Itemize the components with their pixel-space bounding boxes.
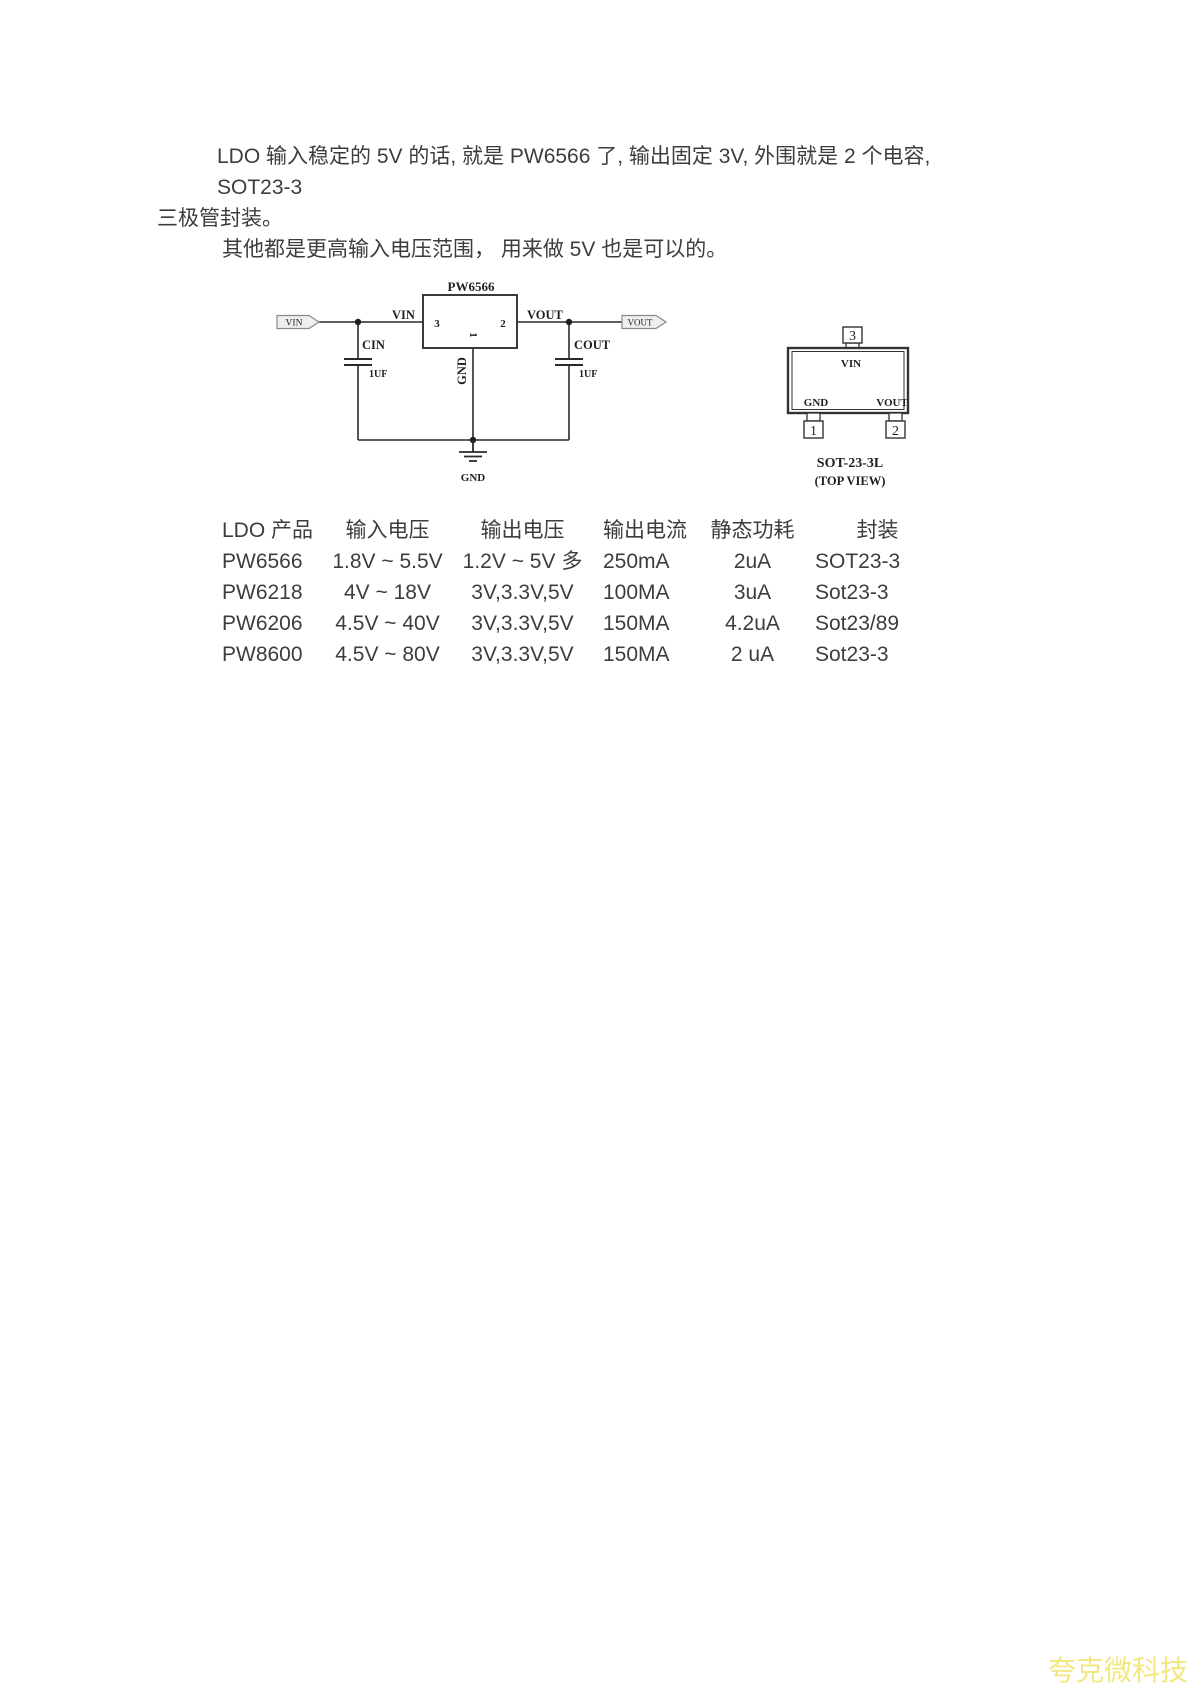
pin2-number: 2 bbox=[892, 424, 899, 439]
vin-flag-label: VIN bbox=[286, 319, 303, 329]
pin2-tab bbox=[889, 413, 902, 421]
ic-pin2-number: 2 bbox=[500, 318, 506, 330]
cell-input-voltage: 4.5V ~ 40V bbox=[320, 608, 455, 639]
pin3-number: 3 bbox=[849, 329, 856, 344]
cout-name: COUT bbox=[574, 338, 611, 352]
table-row: PW6206 4.5V ~ 40V 3V,3.3V,5V 150MA 4.2uA… bbox=[222, 608, 940, 639]
header-input-voltage: 输入电压 bbox=[320, 515, 455, 546]
package-vout-label: VOUT bbox=[876, 397, 908, 409]
intro-line-2: 三极管封装。 bbox=[157, 203, 977, 234]
ldo-product-table: LDO 产品 输入电压 输出电压 输出电流 静态功耗 封装 PW6566 1.8… bbox=[222, 515, 940, 670]
watermark-text: 夸克微科技 bbox=[1048, 1649, 1188, 1683]
package-top-view-diagram: 3 VIN GND VOUT 1 2 SOT-23-3L (TOP VIEW) bbox=[770, 320, 945, 495]
table-row: PW6218 4V ~ 18V 3V,3.3V,5V 100MA 3uA Sot… bbox=[222, 577, 940, 608]
vout-net-label: VOUT bbox=[527, 308, 564, 322]
table-header-row: LDO 产品 输入电压 输出电压 输出电流 静态功耗 封装 bbox=[222, 515, 940, 546]
cin-capacitor-symbol bbox=[344, 359, 372, 365]
vin-net-label: VIN bbox=[392, 308, 415, 322]
header-output-voltage: 输出电压 bbox=[455, 515, 590, 546]
cell-package: Sot23-3 bbox=[815, 577, 940, 608]
cell-output-current: 100MA bbox=[590, 577, 690, 608]
cell-product: PW6566 bbox=[222, 546, 320, 577]
intro-line-3: 其他都是更高输入电压范围， 用来做 5V 也是可以的。 bbox=[157, 234, 977, 265]
cell-product: PW6206 bbox=[222, 608, 320, 639]
cell-package: Sot23-3 bbox=[815, 639, 940, 670]
vin-port-flag: VIN bbox=[277, 316, 319, 329]
cin-value: 1UF bbox=[369, 369, 387, 380]
cell-output-current: 150MA bbox=[590, 639, 690, 670]
cell-package: SOT23-3 bbox=[815, 546, 940, 577]
cell-output-voltage: 3V,3.3V,5V bbox=[455, 608, 590, 639]
ground-symbol bbox=[459, 440, 487, 461]
header-quiescent: 静态功耗 bbox=[690, 515, 815, 546]
cell-output-voltage: 3V,3.3V,5V bbox=[455, 639, 590, 670]
cell-quiescent: 4.2uA bbox=[690, 608, 815, 639]
application-circuit-schematic: VIN VOUT PW6566 3 2 1 VIN VOUT GND CIN 1… bbox=[250, 270, 680, 490]
table-row: PW6566 1.8V ~ 5.5V 1.2V ~ 5V 多 250mA 2uA… bbox=[222, 546, 940, 577]
pin1-number: 1 bbox=[810, 424, 817, 439]
cell-input-voltage: 4V ~ 18V bbox=[320, 577, 455, 608]
ground-label: GND bbox=[461, 472, 486, 484]
cell-quiescent: 3uA bbox=[690, 577, 815, 608]
package-view-note: (TOP VIEW) bbox=[815, 474, 886, 488]
cout-capacitor-symbol bbox=[555, 359, 583, 365]
ic-pin1-number: 1 bbox=[467, 332, 479, 338]
vout-port-flag: VOUT bbox=[622, 316, 666, 329]
document-page: LDO 输入稳定的 5V 的话, 就是 PW6566 了, 输出固定 3V, 外… bbox=[0, 0, 1190, 1683]
table-row: PW8600 4.5V ~ 80V 3V,3.3V,5V 150MA 2 uA … bbox=[222, 639, 940, 670]
cell-product: PW6218 bbox=[222, 577, 320, 608]
cell-output-voltage: 3V,3.3V,5V bbox=[455, 577, 590, 608]
cell-input-voltage: 4.5V ~ 80V bbox=[320, 639, 455, 670]
cell-output-current: 150MA bbox=[590, 608, 690, 639]
ic-title: PW6566 bbox=[448, 279, 495, 294]
header-output-current: 输出电流 bbox=[590, 515, 690, 546]
cin-name: CIN bbox=[362, 338, 385, 352]
cell-package: Sot23/89 bbox=[815, 608, 940, 639]
package-gnd-label: GND bbox=[804, 397, 829, 409]
cell-output-voltage: 1.2V ~ 5V 多 bbox=[455, 546, 590, 577]
cell-quiescent: 2 uA bbox=[690, 639, 815, 670]
pin1-tab bbox=[807, 413, 820, 421]
cout-value: 1UF bbox=[579, 369, 597, 380]
cell-quiescent: 2uA bbox=[690, 546, 815, 577]
package-vin-label: VIN bbox=[841, 358, 861, 370]
intro-paragraphs: LDO 输入稳定的 5V 的话, 就是 PW6566 了, 输出固定 3V, 外… bbox=[157, 141, 977, 265]
intro-line-1: LDO 输入稳定的 5V 的话, 就是 PW6566 了, 输出固定 3V, 外… bbox=[157, 141, 977, 203]
ic-pin3-number: 3 bbox=[434, 318, 440, 330]
package-name: SOT-23-3L bbox=[817, 456, 883, 471]
cell-product: PW8600 bbox=[222, 639, 320, 670]
header-package: 封装 bbox=[815, 515, 940, 546]
vout-flag-label: VOUT bbox=[628, 318, 653, 328]
cell-output-current: 250mA bbox=[590, 546, 690, 577]
gnd-pin-net-label: GND bbox=[455, 357, 469, 385]
header-product: LDO 产品 bbox=[222, 515, 320, 546]
cell-input-voltage: 1.8V ~ 5.5V bbox=[320, 546, 455, 577]
